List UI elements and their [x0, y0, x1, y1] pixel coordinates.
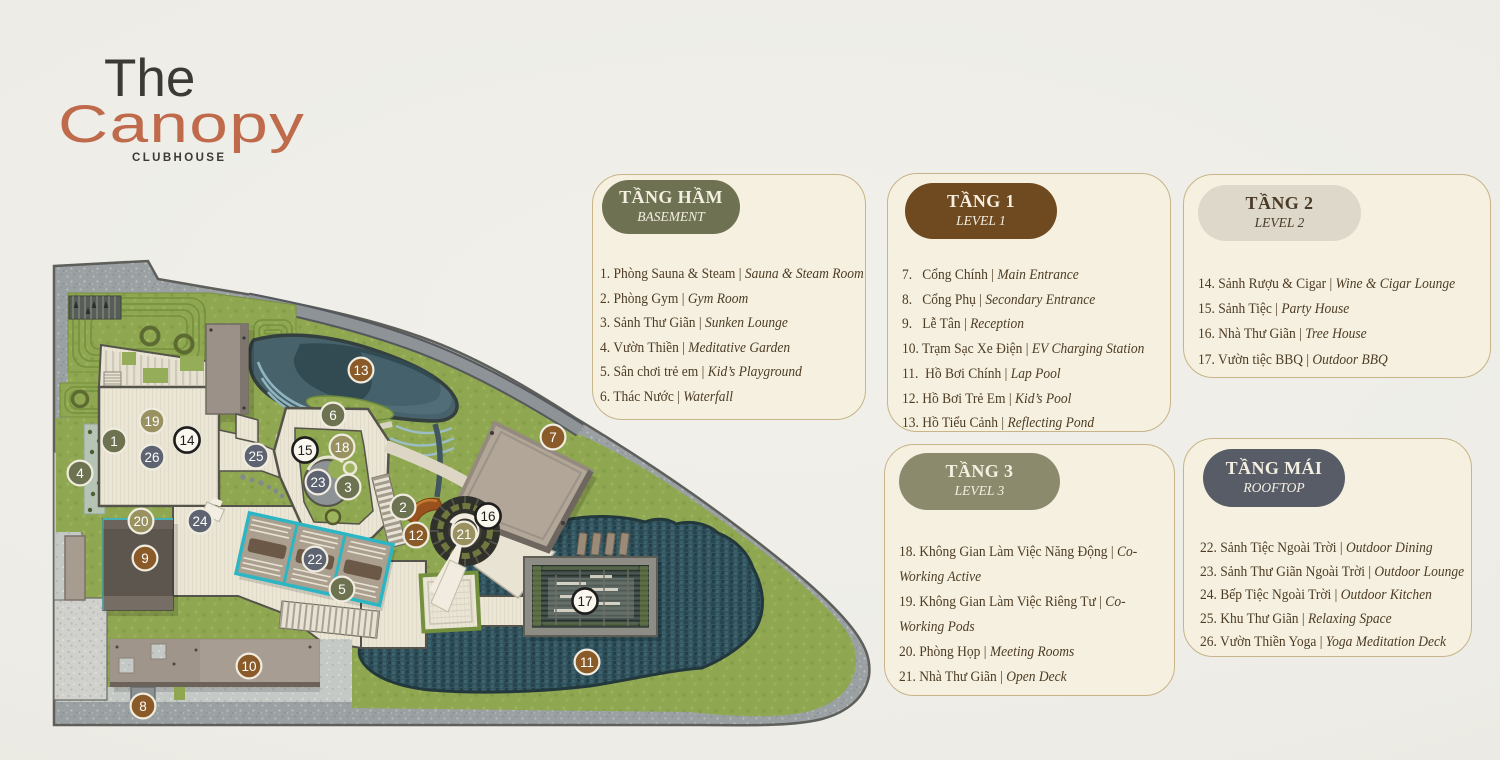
svg-text:21: 21: [456, 527, 471, 542]
svg-text:16: 16: [480, 509, 495, 524]
svg-text:20: 20: [133, 514, 148, 529]
svg-text:4: 4: [76, 466, 84, 481]
svg-text:17: 17: [577, 594, 592, 609]
svg-text:10: 10: [241, 659, 256, 674]
svg-text:23: 23: [310, 475, 325, 490]
svg-text:13: 13: [353, 363, 368, 378]
svg-text:15: 15: [297, 443, 312, 458]
svg-text:19: 19: [144, 414, 159, 429]
svg-text:7: 7: [549, 430, 557, 445]
svg-text:18: 18: [334, 440, 349, 455]
svg-text:22: 22: [307, 552, 322, 567]
svg-text:8: 8: [139, 699, 147, 714]
svg-text:24: 24: [192, 514, 208, 529]
svg-text:12: 12: [408, 528, 423, 543]
svg-text:11: 11: [580, 655, 594, 670]
svg-text:3: 3: [344, 480, 352, 495]
svg-text:6: 6: [329, 408, 337, 423]
svg-text:14: 14: [179, 433, 195, 448]
svg-text:9: 9: [141, 551, 149, 566]
svg-text:2: 2: [399, 500, 407, 515]
svg-text:26: 26: [144, 450, 159, 465]
svg-text:1: 1: [110, 434, 118, 449]
svg-text:25: 25: [248, 449, 263, 464]
svg-text:5: 5: [338, 582, 346, 597]
